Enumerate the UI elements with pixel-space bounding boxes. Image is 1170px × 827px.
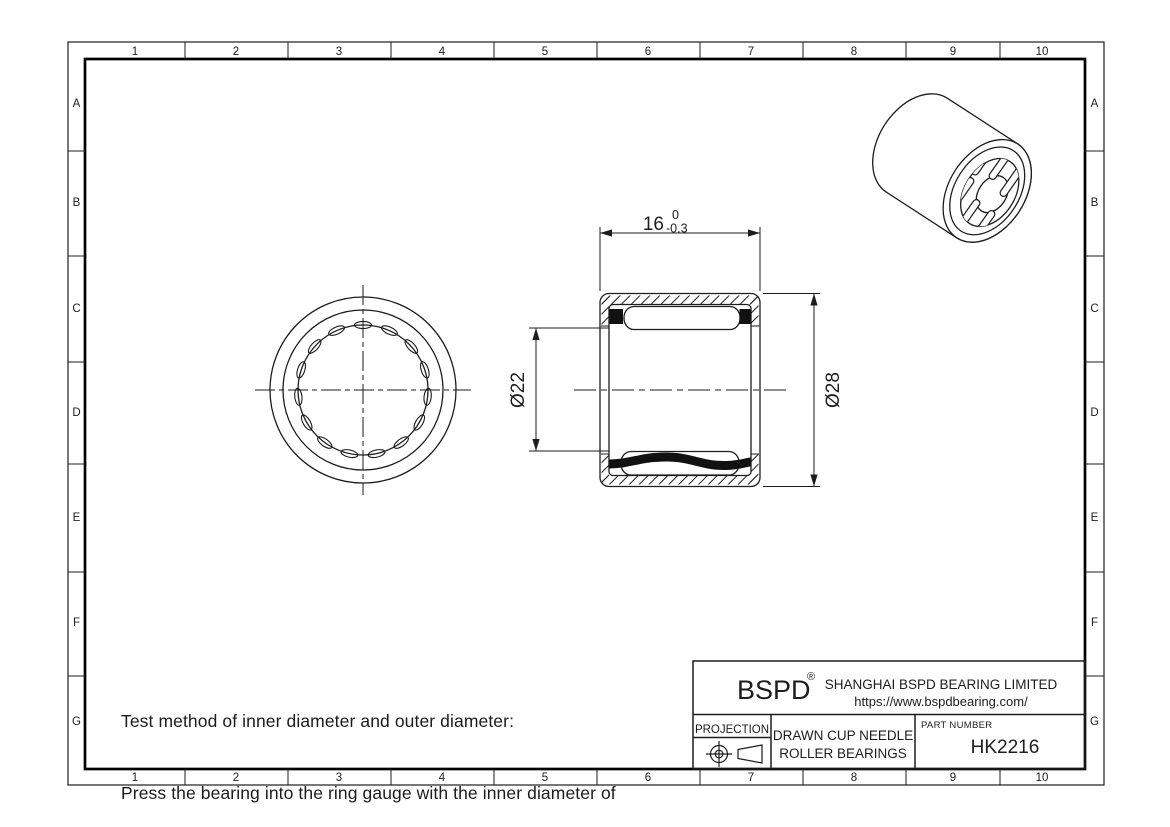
dim-bore-value: Ø22 [508,372,529,408]
grid-row-label: D [72,407,80,419]
grid-col-label: 4 [439,46,446,58]
grid-col-label: 10 [1036,46,1049,58]
grid-col-label: 6 [645,46,651,58]
grid-row-label: A [1091,98,1099,110]
top-roller [624,307,740,330]
product-name-line2: ROLLER BEARINGS [779,746,907,761]
title-block: BSPD ® SHANGHAI BSPD BEARING LIMITED htt… [693,661,1085,769]
grid-col-label: 9 [950,46,956,58]
part-number-value: HK2216 [971,737,1040,758]
drawing-sheet: 1 2 3 4 5 6 7 8 9 10 1 2 3 4 5 6 7 8 9 1… [0,0,1170,827]
top-cage-block-left [610,309,624,324]
grid-row-label: D [1090,407,1098,419]
grid-row-label: C [72,303,80,315]
dimension-width: 16 0 -0.3 [600,208,760,291]
company-name: SHANGHAI BSPD BEARING LIMITED [825,677,1058,692]
grid-col-label: 8 [851,46,857,58]
grid-row-label: A [73,98,81,110]
grid-col-label: 1 [132,46,138,58]
grid-row-label: G [72,716,81,728]
projection-label: PROJECTION [695,724,769,736]
grid-col-label: 3 [336,46,342,58]
grid-row-label: B [73,197,81,209]
grid-col-label: 7 [748,772,754,784]
dim-width-tol-upper: 0 [672,208,679,222]
grid-row-label: E [73,512,81,524]
grid-col-label: 6 [645,772,651,784]
grid-row-label: C [1090,303,1098,315]
brand-logo: BSPD [737,675,811,705]
grid-row-label: F [1091,617,1098,629]
grid-col-label: 8 [851,772,857,784]
part-number-label: PART NUMBER [921,720,992,731]
registered-mark-icon: ® [807,671,815,683]
note-line: Test method of inner diameter and outer … [121,709,616,733]
front-view [255,285,471,495]
test-method-notes: Test method of inner diameter and outer … [121,661,616,827]
section-view [574,294,790,487]
lip-hatch-bottom-right [751,454,759,484]
note-line: Press the bearing into the ring gauge wi… [121,781,616,805]
grid-col-label: 2 [233,46,239,58]
grid-row-label: E [1091,512,1099,524]
dim-width-tol-lower: -0.3 [666,222,688,236]
grid-row-label: B [1091,197,1099,209]
centerlines [255,285,471,495]
grid-col-label: 9 [950,772,956,784]
isometric-view [854,77,1049,258]
grid-row-label: G [1090,716,1099,728]
product-name-line1: DRAWN CUP NEEDLE [773,728,913,743]
cup-hatch-bottom [602,476,758,485]
grid-col-label: 5 [542,46,548,58]
projection-icon [706,741,762,767]
lip-hatch-top-left [602,296,610,326]
lip-hatch-bottom-left [602,454,610,484]
cup-hatch-top [602,296,758,305]
dim-width-value: 16 [643,214,664,235]
grid-row-label: F [73,617,80,629]
grid-col-label: 10 [1036,772,1049,784]
grid-col-label: 7 [748,46,754,58]
dim-od-value: Ø28 [823,372,844,408]
top-cage-block-right [740,309,751,324]
company-website: https://www.bspdbearing.com/ [854,694,1028,709]
lip-hatch-top-right [751,296,759,326]
